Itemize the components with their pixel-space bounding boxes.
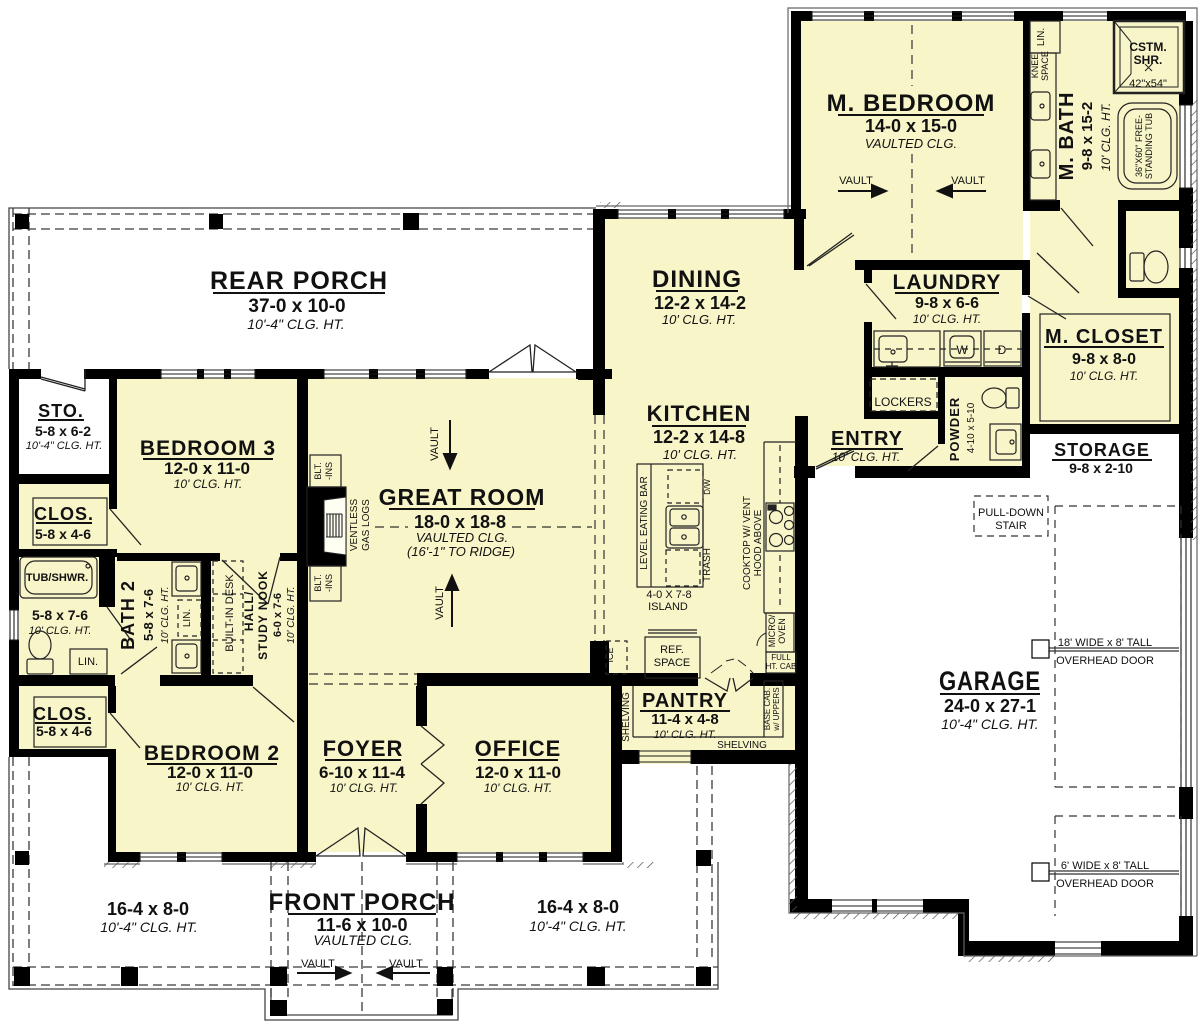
- svg-text:10'-4" CLG. HT.: 10'-4" CLG. HT.: [941, 716, 1038, 732]
- svg-text:6' WIDE x 8' TALL: 6' WIDE x 8' TALL: [1061, 860, 1149, 872]
- svg-text:LOCKERS: LOCKERS: [874, 395, 931, 409]
- svg-text:10'-4" CLG. HT.: 10'-4" CLG. HT.: [100, 919, 197, 935]
- svg-text:CSTM.: CSTM.: [1129, 40, 1166, 54]
- svg-text:VAULT: VAULT: [434, 586, 446, 620]
- svg-text:11-4 x 4-8: 11-4 x 4-8: [651, 711, 719, 728]
- svg-text:GREAT ROOM: GREAT ROOM: [379, 484, 546, 510]
- svg-text:BEDROOM 3: BEDROOM 3: [140, 437, 276, 460]
- svg-text:LIN.: LIN.: [78, 656, 98, 668]
- svg-text:36"X60" FREE-: 36"X60" FREE-: [1134, 115, 1144, 177]
- svg-text:-INS: -INS: [324, 462, 334, 480]
- svg-text:D: D: [998, 343, 1007, 357]
- svg-text:BLT.: BLT.: [313, 574, 323, 591]
- svg-text:OFFICE: OFFICE: [475, 736, 562, 761]
- svg-text:FULL: FULL: [771, 653, 791, 662]
- svg-text:5-8 x 7-6: 5-8 x 7-6: [141, 589, 156, 641]
- svg-text:ISLAND: ISLAND: [648, 601, 688, 613]
- svg-text:10' CLG. HT.: 10' CLG. HT.: [286, 586, 297, 643]
- svg-text:D/W: D/W: [703, 479, 712, 495]
- svg-text:BASE CAB.: BASE CAB.: [763, 688, 772, 730]
- svg-text:BUILT-IN DESK: BUILT-IN DESK: [224, 574, 236, 652]
- svg-text:VAULT: VAULT: [839, 175, 873, 187]
- svg-text:HT. CAB: HT. CAB: [766, 662, 797, 671]
- svg-text:(16'-1" TO RIDGE): (16'-1" TO RIDGE): [407, 544, 515, 559]
- svg-text:10' CLG. HT.: 10' CLG. HT.: [1070, 369, 1139, 383]
- svg-text:5-8 x 4-6: 5-8 x 4-6: [36, 723, 92, 739]
- svg-text:KITCHEN: KITCHEN: [647, 401, 752, 426]
- svg-text:ICE: ICE: [605, 647, 615, 662]
- svg-text:HALL/: HALL/: [242, 591, 256, 631]
- svg-text:SHELVING: SHELVING: [621, 692, 632, 742]
- svg-text:STUDY NOOK: STUDY NOOK: [256, 570, 270, 660]
- svg-text:FOYER: FOYER: [323, 736, 404, 761]
- svg-text:OVEN: OVEN: [777, 618, 787, 644]
- svg-text:6-10 x 11-4: 6-10 x 11-4: [319, 763, 406, 782]
- svg-text:SPACE: SPACE: [654, 657, 690, 669]
- svg-text:9-8 x 6-6: 9-8 x 6-6: [915, 295, 979, 312]
- svg-text:SPACE: SPACE: [1040, 51, 1050, 81]
- svg-text:24-0 x 27-1: 24-0 x 27-1: [944, 696, 1036, 716]
- svg-text:GARAGE: GARAGE: [939, 667, 1041, 697]
- svg-text:5-8 x 6-2: 5-8 x 6-2: [35, 423, 91, 439]
- svg-text:M. BATH: M. BATH: [1056, 92, 1078, 181]
- svg-text:4-10 x 5-10: 4-10 x 5-10: [966, 402, 977, 453]
- svg-text:VAULTED CLG.: VAULTED CLG.: [313, 932, 412, 948]
- svg-text:9-8 x 15-2: 9-8 x 15-2: [1079, 102, 1096, 170]
- svg-text:OVERHEAD DOOR: OVERHEAD DOOR: [1056, 655, 1154, 667]
- svg-text:18-0 x 18-8: 18-0 x 18-8: [414, 512, 506, 532]
- svg-text:9-8 x 2-10: 9-8 x 2-10: [1069, 460, 1133, 476]
- svg-text:DINING: DINING: [652, 266, 742, 293]
- svg-text:10' CLG. HT.: 10' CLG. HT.: [662, 312, 736, 327]
- svg-text:ENTRY: ENTRY: [831, 428, 903, 450]
- svg-text:10'-4" CLG. HT.: 10'-4" CLG. HT.: [529, 918, 626, 934]
- svg-text:37-0 x 10-0: 37-0 x 10-0: [248, 296, 345, 317]
- svg-text:w/ UPPERS: w/ UPPERS: [772, 687, 781, 731]
- svg-text:16-4 x 8-0: 16-4 x 8-0: [107, 899, 189, 919]
- svg-text:TRASH: TRASH: [702, 548, 713, 582]
- svg-text:REF.: REF.: [660, 644, 684, 656]
- svg-text:12-0 x 11-0: 12-0 x 11-0: [164, 459, 250, 478]
- svg-text:LAUNDRY: LAUNDRY: [893, 271, 1002, 294]
- svg-text:10' CLG. HT.: 10' CLG. HT.: [654, 729, 717, 741]
- svg-text:16-4 x 8-0: 16-4 x 8-0: [537, 897, 619, 917]
- svg-text:10' CLG. HT.: 10' CLG. HT.: [832, 450, 901, 464]
- svg-text:PANTRY: PANTRY: [642, 690, 728, 712]
- svg-text:MICRO/: MICRO/: [767, 614, 777, 647]
- svg-text:4-0 X 7-8: 4-0 X 7-8: [646, 589, 691, 601]
- svg-text:VAULT: VAULT: [301, 958, 335, 970]
- svg-text:LIN.: LIN.: [1036, 28, 1047, 46]
- svg-text:BATH 2: BATH 2: [118, 580, 138, 650]
- svg-text:5-8 x 4-6: 5-8 x 4-6: [35, 526, 91, 542]
- svg-text:10' CLG. HT.: 10' CLG. HT.: [29, 625, 92, 637]
- svg-text:GAS LOGS: GAS LOGS: [361, 499, 372, 551]
- svg-text:SHR.: SHR.: [1134, 53, 1163, 67]
- svg-text:9-8 x 8-0: 9-8 x 8-0: [1072, 351, 1136, 368]
- svg-text:HOOD ABOVE: HOOD ABOVE: [753, 509, 764, 576]
- svg-text:STAIR: STAIR: [995, 520, 1027, 532]
- svg-text:10' CLG. HT.: 10' CLG. HT.: [913, 312, 982, 326]
- svg-text:BLT.: BLT.: [313, 462, 323, 479]
- svg-text:12-0 x 11-0: 12-0 x 11-0: [475, 763, 561, 782]
- svg-text:STO.: STO.: [38, 401, 84, 421]
- svg-text:CLOS.: CLOS.: [33, 704, 93, 724]
- svg-text:10'-4" CLG. HT.: 10'-4" CLG. HT.: [247, 316, 344, 332]
- svg-text:12-2 x 14-8: 12-2 x 14-8: [653, 427, 745, 447]
- svg-text:KNEE: KNEE: [1030, 54, 1040, 79]
- svg-text:-INS: -INS: [324, 574, 334, 592]
- svg-text:COOKTOP W/ VENT: COOKTOP W/ VENT: [742, 496, 753, 590]
- svg-text:12-2 x 14-2: 12-2 x 14-2: [654, 293, 746, 313]
- svg-text:VENTLESS: VENTLESS: [349, 499, 360, 552]
- svg-text:LIN.: LIN.: [182, 609, 193, 627]
- svg-text:LEVEL EATING BAR: LEVEL EATING BAR: [639, 476, 650, 569]
- svg-text:18' WIDE x 8' TALL: 18' WIDE x 8' TALL: [1058, 637, 1152, 649]
- svg-text:STANDING TUB: STANDING TUB: [1144, 113, 1154, 179]
- svg-text:10' CLG. HT.: 10' CLG. HT.: [1099, 103, 1113, 172]
- svg-text:M. BEDROOM: M. BEDROOM: [827, 90, 996, 117]
- svg-text:POWDER: POWDER: [947, 397, 962, 462]
- svg-text:5-8 x 7-6: 5-8 x 7-6: [32, 607, 88, 623]
- svg-text:TUB/SHWR.: TUB/SHWR.: [26, 572, 88, 584]
- svg-text:PULL-DOWN: PULL-DOWN: [978, 507, 1044, 519]
- svg-text:OVERHEAD DOOR: OVERHEAD DOOR: [1056, 878, 1154, 890]
- svg-text:W: W: [956, 343, 968, 357]
- svg-text:10' CLG. HT.: 10' CLG. HT.: [330, 781, 399, 795]
- svg-text:VAULTED CLG.: VAULTED CLG.: [865, 136, 957, 151]
- svg-text:STORAGE: STORAGE: [1054, 440, 1150, 460]
- svg-text:10' CLG. HT.: 10' CLG. HT.: [663, 447, 737, 462]
- svg-text:10' CLG. HT.: 10' CLG. HT.: [160, 586, 171, 643]
- svg-text:BEDROOM 2: BEDROOM 2: [144, 742, 280, 765]
- svg-text:6-0 x 7-6: 6-0 x 7-6: [272, 593, 284, 637]
- svg-text:10' CLG. HT.: 10' CLG. HT.: [174, 477, 243, 491]
- svg-text:10' CLG. HT.: 10' CLG. HT.: [484, 781, 553, 795]
- svg-text:M. CLOSET: M. CLOSET: [1045, 326, 1163, 348]
- svg-text:VAULT: VAULT: [429, 427, 441, 461]
- svg-text:14-0 x 15-0: 14-0 x 15-0: [865, 116, 957, 136]
- svg-text:VAULT: VAULT: [389, 958, 423, 970]
- svg-text:VAULT: VAULT: [951, 175, 985, 187]
- svg-text:VAULTED CLG.: VAULTED CLG.: [416, 530, 508, 545]
- svg-text:FRONT PORCH: FRONT PORCH: [269, 889, 456, 916]
- svg-text:SHELVING: SHELVING: [717, 740, 767, 751]
- svg-text:42"x54": 42"x54": [1129, 78, 1167, 90]
- svg-text:10' CLG. HT.: 10' CLG. HT.: [176, 780, 245, 794]
- svg-text:10'-4" CLG. HT.: 10'-4" CLG. HT.: [26, 440, 103, 452]
- svg-text:CLOS.: CLOS.: [34, 504, 94, 524]
- svg-text:REAR PORCH: REAR PORCH: [210, 267, 388, 295]
